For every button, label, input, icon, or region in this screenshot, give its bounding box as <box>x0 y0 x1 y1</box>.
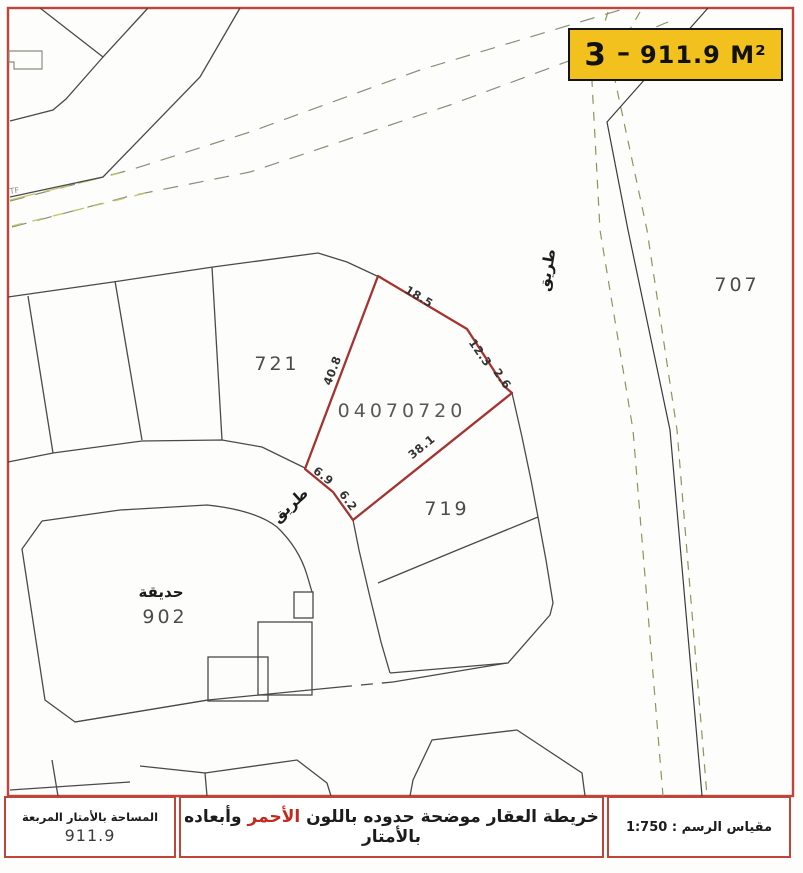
dim-left-40-8: 40.8 <box>320 354 344 387</box>
plot-707-label: 707 <box>714 274 759 296</box>
footer-area-label: المساحة بالأمتار المربعة <box>22 809 158 825</box>
footer-area-value: 911.9 <box>65 826 116 845</box>
footer-note-prefix: خريطة العقار موضحة حدوده باللون <box>300 807 599 827</box>
footer-area-box: المساحة بالأمتار المربعة 911.9 <box>4 796 176 858</box>
block-719-boundaries <box>353 393 553 673</box>
bottom-plot-shapes <box>10 730 585 796</box>
curved-road-label: طريق <box>268 484 312 526</box>
footer-scale-box: مقياس الرسم : 1:750 <box>607 796 791 858</box>
badge-area-value: 911.9 M² <box>640 41 767 69</box>
tf-marker-label: TF <box>8 186 20 196</box>
parcel-number-label: 04070720 <box>338 400 467 422</box>
dim-corner-6-2: 6.2 <box>336 488 360 514</box>
cadastral-map-canvas: 04070720 721 707 719 حديقة 902 طريق طريق… <box>0 0 803 873</box>
vertical-road-label: طريق <box>534 247 559 292</box>
block-721-boundaries <box>8 253 377 468</box>
area-badge: 3 – 911.9 M² <box>568 28 783 81</box>
garden-number-label: 902 <box>142 606 187 628</box>
garden-label: حديقة <box>139 583 184 601</box>
badge-plot-number: 3 <box>584 37 607 73</box>
top-left-boundaries <box>10 8 240 197</box>
yellow-dashed-road-edge <box>10 173 150 226</box>
footer-note-red-word: الأحمر <box>248 807 301 827</box>
footer-scale-text: مقياس الرسم : 1:750 <box>626 820 772 835</box>
badge-separator: – <box>617 38 630 68</box>
dim-top-18-5: 18.5 <box>402 283 435 311</box>
parcel-red-boundary <box>305 276 512 520</box>
garden-902-outline <box>22 505 507 722</box>
plot-721-label: 721 <box>254 353 299 375</box>
footer-note-box: خريطة العقار موضحة حدوده باللون الأحمر و… <box>179 796 604 858</box>
dim-corner-6-9: 6.9 <box>311 464 337 488</box>
vertical-road <box>592 8 708 796</box>
cadastral-map-page: 04070720 721 707 719 حديقة 902 طريق طريق… <box>0 0 803 873</box>
footer-note-text: خريطة العقار موضحة حدوده باللون الأحمر و… <box>181 807 602 848</box>
building-footprint-topleft <box>9 51 42 69</box>
plot-719-label: 719 <box>424 498 469 520</box>
